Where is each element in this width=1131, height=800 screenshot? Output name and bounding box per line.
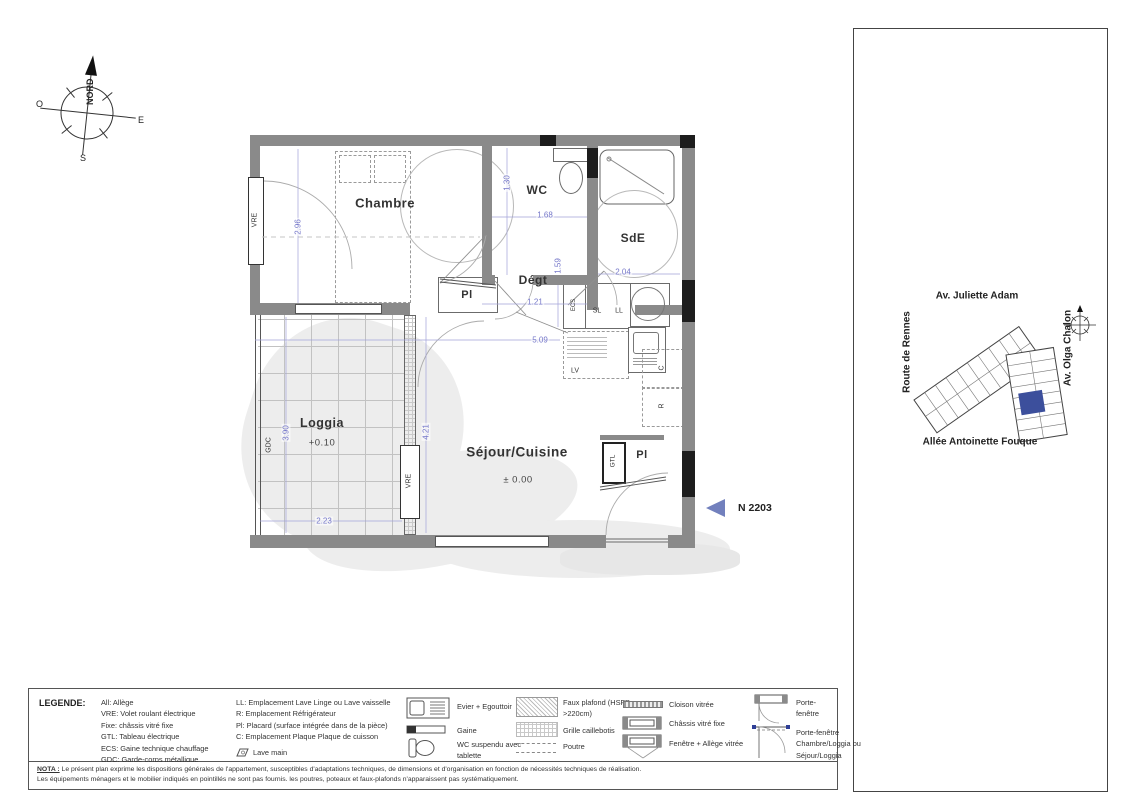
nota-line1: NOTA : Le présent plan exprime les dispo… [37, 765, 829, 775]
nota-line2: Les équipements ménagers et le mobilier … [37, 775, 829, 785]
porte-fenetre-loggia-icon [751, 725, 791, 759]
vre-chambre-label: VRE [252, 213, 259, 227]
legend-item: GTL: Tableau électrique [101, 731, 209, 742]
lave-main-icon [236, 748, 249, 757]
legend-item: ECS: Gaine technique chauffage [101, 743, 209, 754]
compass-south-label: S [80, 153, 86, 163]
wall-fill [680, 135, 695, 148]
legend-item: Pl: Placard (surface intégrée dans de la… [236, 720, 390, 731]
gtl-label: GTL [610, 455, 617, 468]
refrigerateur-label: R [659, 403, 666, 408]
legend-gaine-label: Gaine [457, 725, 477, 736]
room-label-wc: WC [527, 183, 548, 197]
sl-label: SL [593, 308, 602, 315]
dim-degt-w: 1.21 [526, 298, 544, 307]
grille-caillebotis-swatch [516, 722, 558, 737]
street-label-right: Av. Olga Chalon [1063, 310, 1074, 386]
room-label-sde: SdE [621, 231, 646, 245]
ll-label: LL [615, 308, 623, 315]
street-label-left: Route de Rennes [902, 311, 913, 393]
wall-fill [540, 135, 556, 146]
room-label-loggia: Loggia [300, 416, 344, 430]
wall-fill [682, 280, 695, 322]
window-sejour-bottom [435, 536, 549, 547]
sejour-level: ± 0.00 [503, 475, 532, 486]
cuisson-label: C [659, 365, 666, 370]
wall-bottom [668, 535, 695, 548]
lv-label: LV [571, 368, 579, 375]
plan-de-vente-sheet: { "colors": {"logo_purple":"#433d92","di… [0, 0, 1131, 800]
legend-grille-label: Grille caillebotis [563, 725, 615, 736]
window-chambre-loggia [295, 304, 382, 314]
pillow [339, 155, 371, 183]
wall-gtl-top [600, 435, 664, 440]
toilet-tank [553, 148, 589, 162]
turning-circle-chambre [400, 149, 514, 263]
porte-fenetre-icon [751, 695, 791, 723]
dim-loggia-h: 3.90 [282, 424, 291, 442]
legend-item: All: Allège [101, 697, 209, 708]
dim-chambre: 2.96 [294, 218, 303, 236]
compass-rose: NORD O E S [30, 35, 150, 165]
compass-west-label: O [36, 99, 43, 109]
fenetre-allege-icon [623, 735, 667, 759]
gaine-icon [406, 725, 446, 734]
ecs-label: ECS [571, 299, 577, 311]
dim-wc-w: 1.68 [536, 211, 554, 220]
legend-abbr-col2: LL: Emplacement Lave Linge ou Lave vaiss… [236, 697, 390, 758]
cloison-vitree-icon [623, 701, 663, 708]
nota-label: NOTA : [37, 766, 60, 773]
wall-fill [587, 148, 598, 178]
room-label-pl-chambre: Pl [461, 289, 472, 301]
room-label-sejour: Séjour/Cuisine [466, 445, 568, 460]
nota-box: NOTA : Le présent plan exprime les dispo… [28, 762, 838, 790]
dim-sejour-h: 4.21 [422, 423, 431, 441]
legend-item: LL: Emplacement Lave Linge ou Lave vaiss… [236, 697, 390, 708]
wall-bottom [250, 535, 606, 548]
chassis-vitre-icon [623, 717, 661, 729]
legend-pf-label: Porte-fenêtre [796, 697, 837, 720]
grille-pattern [567, 335, 607, 361]
wall-chambre-wc [482, 146, 492, 277]
wc-suspendu-icon [408, 737, 438, 759]
wall-fill [682, 451, 695, 497]
room-label-degt: Dégt [519, 273, 548, 287]
street-label-bottom: Allée Antoinette Fouque [923, 437, 1038, 448]
legend-poutre-label: Poutre [563, 741, 585, 752]
wall-wc-bottom [482, 275, 495, 285]
faux-plafond-swatch [516, 697, 558, 717]
vre-loggia-label: VRE [406, 474, 413, 488]
legend-chassis-label: Châssis vitré fixe [669, 718, 725, 729]
toilet-bowl [559, 162, 583, 194]
unit-marker-arrow-icon [706, 499, 725, 517]
legend-box: LEGENDE: All: Allège VRE: Volet roulant … [28, 688, 838, 762]
dim-degt-d: 1.59 [554, 257, 563, 275]
north-arrow [85, 55, 99, 76]
room-label-pl-entree: Pl [636, 449, 647, 461]
gdc-label: GDC [266, 437, 273, 453]
nota-text: Le présent plan exprime les dispositions… [62, 766, 642, 773]
unit-marker: N 2203 [706, 499, 772, 517]
dim-plan-w: 5.09 [531, 336, 549, 345]
loggia-level: +0.10 [309, 438, 336, 449]
legend-item: VRE: Volet roulant électrique [101, 708, 209, 719]
legend-fenetre-label: Fenêtre + Allège vitrée [669, 738, 743, 749]
floor-plan: VRE VRE ECS SL LL LV C R GTL [250, 135, 695, 555]
poutre-swatch [516, 743, 556, 753]
dim-loggia-w: 2.23 [315, 517, 333, 526]
legend-pf2-label: Porte-fenêtre Chambre/Loggia ou Séjour/L… [796, 727, 864, 761]
room-label-chambre: Chambre [355, 196, 415, 211]
compass-north-label: NORD [85, 78, 95, 105]
dim-sde: 2.04 [614, 268, 632, 277]
legend-abbr-col1: All: Allège VRE: Volet roulant électriqu… [101, 697, 209, 765]
legend-title: LEGENDE: [39, 698, 86, 708]
highlighted-unit [1018, 390, 1045, 415]
legend-item: R: Emplacement Réfrigérateur [236, 708, 390, 719]
pillow [374, 155, 406, 183]
evier-egouttoir-icon [406, 697, 450, 719]
legend-item: C: Emplacement Plaque Plaque de cuisson [236, 731, 390, 742]
unit-marker-label: N 2203 [738, 502, 772, 514]
dim-wc-h: 1.30 [503, 174, 512, 192]
legend-cloison-label: Cloison vitrée [669, 699, 714, 710]
loggia-railing-gdc [255, 315, 261, 535]
legend-item: Lave main [253, 747, 287, 758]
legend-item: Fixe: châssis vitré fixe [101, 720, 209, 731]
legend-evier-label: Evier + Egouttoir [457, 701, 512, 712]
washbasin-bowl [631, 287, 665, 321]
street-label-top: Av. Juliette Adam [936, 291, 1018, 302]
wall-top [250, 135, 695, 146]
compass-east-label: E [138, 115, 144, 125]
legend-lave-main: Lave main [236, 747, 390, 758]
